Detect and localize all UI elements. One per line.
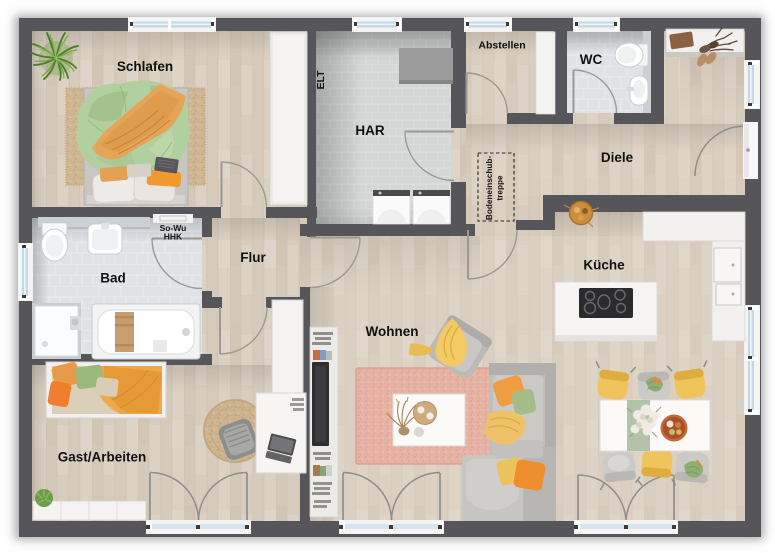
svg-text:Schlafen: Schlafen — [117, 59, 173, 74]
svg-text:Flur: Flur — [240, 250, 266, 265]
svg-text:treppe: treppe — [496, 175, 505, 200]
svg-text:HHK: HHK — [164, 232, 183, 242]
svg-text:Bad: Bad — [100, 271, 126, 286]
svg-text:Diele: Diele — [601, 150, 634, 165]
svg-text:Gast/Arbeiten: Gast/Arbeiten — [58, 450, 147, 465]
svg-text:ELT: ELT — [315, 70, 327, 90]
svg-text:Abstellen: Abstellen — [478, 40, 525, 52]
svg-text:HAR: HAR — [355, 123, 384, 138]
svg-text:Bodeneinschub-: Bodeneinschub- — [485, 156, 494, 220]
svg-text:WC: WC — [580, 52, 603, 67]
svg-text:Wohnen: Wohnen — [366, 324, 419, 339]
svg-text:Küche: Küche — [583, 258, 625, 273]
